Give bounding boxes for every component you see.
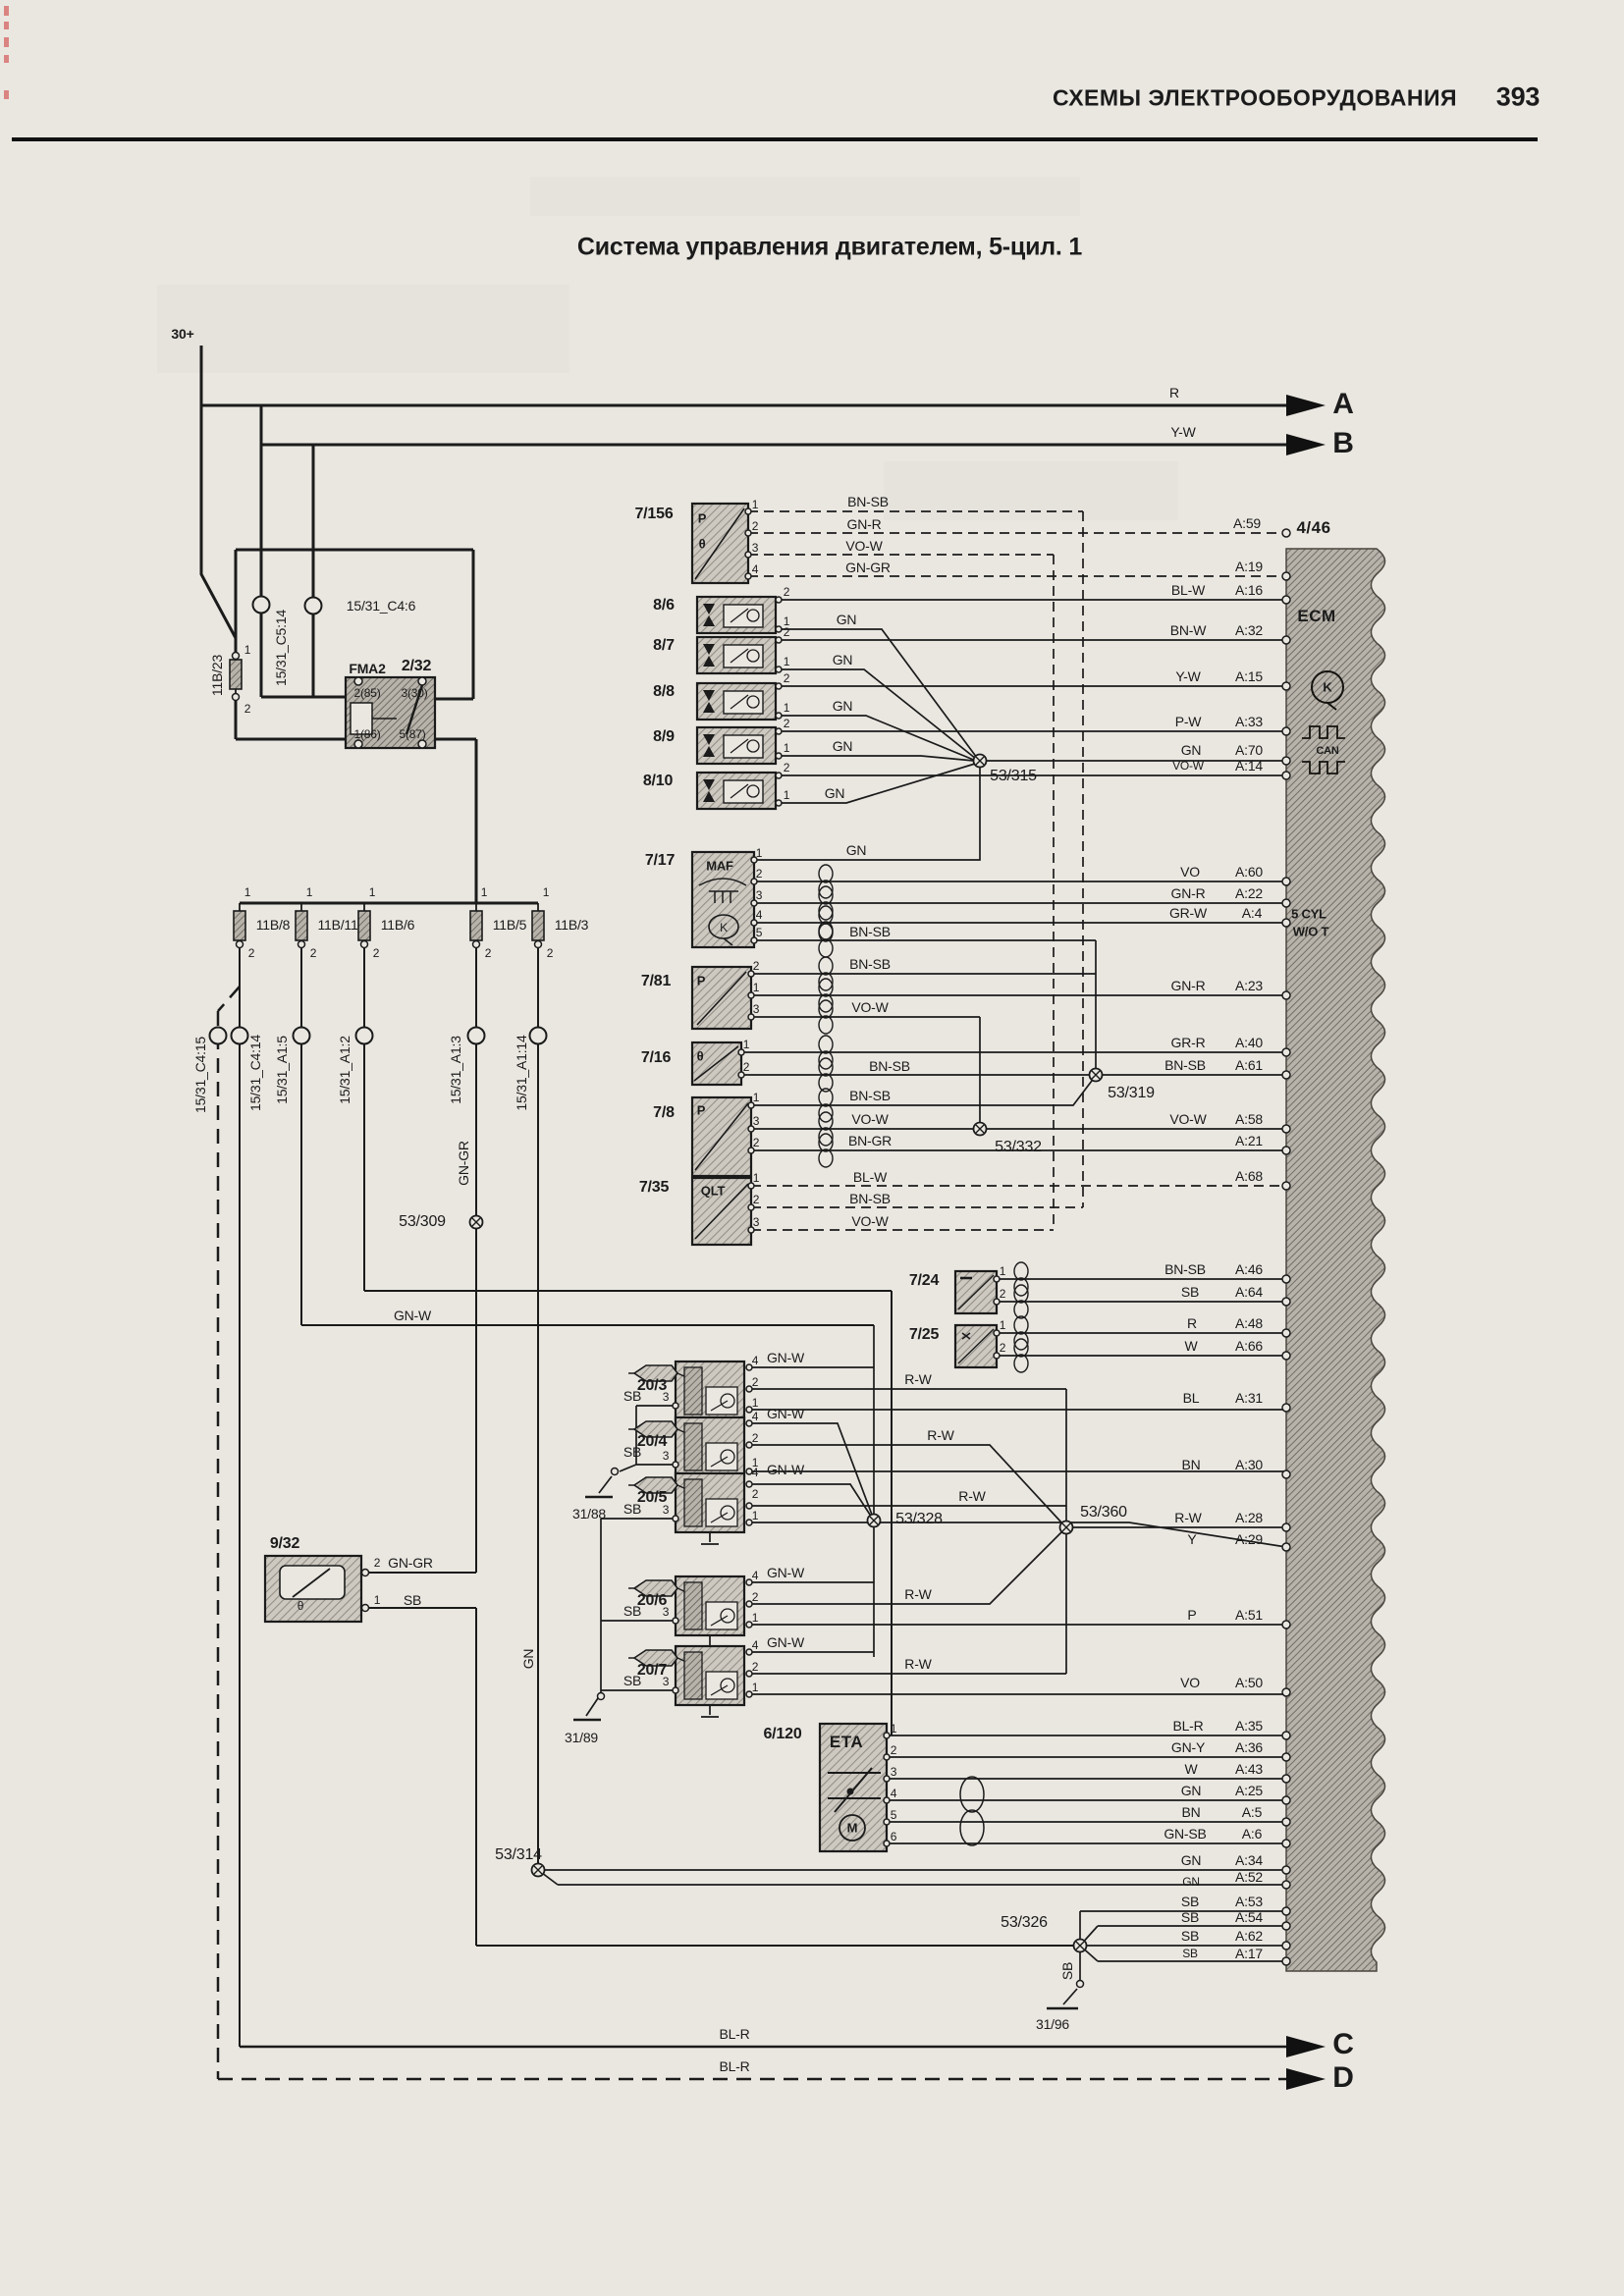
label-ecm-pins-a36: A:36 <box>1235 1739 1263 1755</box>
label-wire_colors-gny: GN-Y <box>1171 1739 1205 1755</box>
label-pn-n3: 3 <box>756 888 762 902</box>
label-fuses-f3: 11B/3 <box>555 917 589 933</box>
label-connectors-c414: 15/31_C4:14 <box>247 1035 263 1111</box>
label-junctions-j328: 53/328 <box>895 1511 943 1528</box>
label-pn-n6: 6 <box>891 1830 896 1843</box>
label-pn-n1: 1 <box>306 885 312 899</box>
label-pn-n2: 2 <box>784 761 789 774</box>
label-ecm-pins-a25: A:25 <box>1235 1783 1263 1798</box>
label-components-s932-t: θ <box>298 1599 303 1613</box>
label-wire_colors-rw: R-W <box>904 1656 931 1672</box>
label-ecm-pins-a6: A:6 <box>1242 1826 1262 1842</box>
label-pn-n1: 1 <box>752 1611 758 1625</box>
label-pn-n1: 1 <box>752 498 758 511</box>
label-pn-n1: 1 <box>891 1722 896 1735</box>
label-wire_colors-vow: VO-W <box>851 999 888 1015</box>
label-pn-n2: 2 <box>743 1060 749 1074</box>
label-ecm-label: ECM <box>1297 607 1335 626</box>
label-ecm-pins-a5: A:5 <box>1242 1804 1262 1820</box>
label-wire_colors-r: R <box>1187 1315 1197 1331</box>
label-connectors-c415: 15/31_C4:15 <box>192 1037 208 1113</box>
label-pn-n5: 5 <box>891 1808 896 1822</box>
label-wire_colors-bnsb: BN-SB <box>849 924 891 939</box>
label-connectors-a114: 15/31_A1:14 <box>514 1035 529 1110</box>
label-components-s7156-p: P <box>698 511 706 526</box>
label-components-s716-t: θ <box>697 1049 704 1064</box>
label-wire_colors-blr: BL-R <box>719 2058 749 2074</box>
label-ecm-pins-a52: A:52 <box>1235 1869 1263 1885</box>
label-components-qlt-label: QLT <box>701 1184 725 1199</box>
label-ecm-pins-a54: A:54 <box>1235 1909 1263 1925</box>
label-wire_colors-gn: GN <box>1181 1783 1202 1798</box>
label-net-a: A <box>1332 388 1353 421</box>
label-components-maf-k: K <box>720 921 728 934</box>
label-ecm-pins-a32: A:32 <box>1235 622 1263 638</box>
label-wire_colors-r: R <box>1169 385 1179 400</box>
label-wire_colors-vow: VO-W <box>845 538 882 554</box>
label-pn-n1: 1 <box>374 1593 380 1607</box>
label-components-relay-name: FMA2 <box>349 661 385 676</box>
label-wire_colors-vow: VO-W <box>1169 1111 1206 1127</box>
label-pn-n2: 2 <box>310 946 316 960</box>
label-wire_colors-gn: GN <box>833 652 853 667</box>
label-junctions-j315: 53/315 <box>990 768 1037 785</box>
label-wire_colors-sb: SB <box>1181 1894 1199 1909</box>
label-ecm-cyl_line2: W/O T <box>1293 925 1329 939</box>
label-ecm-pins-a64: A:64 <box>1235 1284 1263 1300</box>
label-components-relay-pin87: 5(87) <box>399 727 425 741</box>
label-wire_colors-gn: GN <box>1182 1875 1200 1889</box>
label-wire_colors-pw: P-W <box>1175 714 1202 729</box>
label-pn-n3: 3 <box>753 1002 759 1016</box>
label-pn-n3: 3 <box>753 1215 759 1229</box>
label-components-relay-pin85: 2(85) <box>353 686 380 700</box>
label-ecm-pins-a51: A:51 <box>1235 1607 1263 1623</box>
label-components-coil1-id: 8/6 <box>653 597 675 614</box>
label-pn-n1: 1 <box>753 1091 759 1104</box>
label-pn-n1: 1 <box>753 981 759 994</box>
label-wire_colors-sb: SB <box>1181 1928 1199 1944</box>
label-components-s725-id: 7/25 <box>909 1326 939 1344</box>
label-junctions-j309: 53/309 <box>399 1213 446 1231</box>
label-connectors-a13: 15/31_A1:3 <box>448 1036 463 1104</box>
label-pn-n3: 3 <box>663 1503 669 1517</box>
label-net-plus30: 30+ <box>171 326 193 342</box>
label-wire_colors-blw: BL-W <box>853 1169 887 1185</box>
label-wire_colors-bl: BL <box>1183 1390 1200 1406</box>
label-ecm-pins-a60: A:60 <box>1235 864 1263 880</box>
label-wire_colors-bnsb: BN-SB <box>847 494 889 509</box>
label-wire_colors-grr: GR-R <box>1171 1035 1206 1050</box>
label-wire_colors-sb: SB <box>623 1501 641 1517</box>
label-ecm-pins-a61: A:61 <box>1235 1057 1263 1073</box>
label-wire_colors-gnr: GN-R <box>1171 978 1206 993</box>
label-pn-n4: 4 <box>752 1466 758 1479</box>
label-pn-n1: 1 <box>784 788 789 802</box>
label-pn-n2: 2 <box>753 1136 759 1149</box>
label-wire_colors-sb: SB <box>623 1673 641 1688</box>
label-wire_colors-bnsb: BN-SB <box>849 1088 891 1103</box>
label-page-title: Система управления двигателем, 5-цил. 1 <box>577 234 1082 262</box>
label-ecm-pins-a22: A:22 <box>1235 885 1263 901</box>
label-components-relay-id: 2/32 <box>402 658 431 675</box>
label-ecm-pins-a40: A:40 <box>1235 1035 1263 1050</box>
label-wire_colors-gnw: GN-W <box>767 1565 804 1580</box>
label-pn-n2: 2 <box>753 959 759 973</box>
label-pn-n5: 5 <box>756 926 762 939</box>
label-connectors-c46: 15/31_C4:6 <box>347 598 415 614</box>
label-wire_colors-gnw: GN-W <box>394 1308 431 1323</box>
label-fuses-f5: 11B/5 <box>493 917 527 933</box>
label-components-coil4-id: 8/9 <box>653 728 675 746</box>
label-pn-n2: 2 <box>753 1193 759 1206</box>
label-ecm-pins-a43: A:43 <box>1235 1761 1263 1777</box>
label-pn-n2: 2 <box>752 1660 758 1674</box>
label-junctions-j360: 53/360 <box>1080 1504 1127 1522</box>
manual-page: СХЕМЫ ЭЛЕКТРООБОРУДОВАНИЯ393Система упра… <box>0 0 1624 2296</box>
label-ecm-k: K <box>1323 680 1331 695</box>
label-pn-n2: 2 <box>784 625 789 639</box>
label-pn-n3: 3 <box>663 1449 669 1463</box>
label-components-s78-id: 7/8 <box>653 1104 675 1122</box>
label-ecm-pins-a66: A:66 <box>1235 1338 1263 1354</box>
label-ecm-cyl_line1: 5 CYL <box>1291 907 1326 922</box>
label-pn-n3: 3 <box>663 1605 669 1619</box>
label-pn-n1: 1 <box>369 885 375 899</box>
label-ecm-pins-a14: A:14 <box>1235 758 1263 774</box>
label-ecm-pins-a30: A:30 <box>1235 1457 1263 1472</box>
label-net-c: C <box>1332 2028 1353 2061</box>
label-ecm-pins-a68: A:68 <box>1235 1168 1263 1184</box>
label-wire_colors-blw: BL-W <box>1171 582 1205 598</box>
label-wire_colors-yw: Y-W <box>1175 668 1200 684</box>
label-wire_colors-vow: VO-W <box>851 1213 888 1229</box>
label-pn-n2: 2 <box>752 1375 758 1389</box>
label-wire_colors-gnr: GN-R <box>847 516 882 532</box>
label-wire_colors-bn: BN <box>1181 1457 1200 1472</box>
label-wire_colors-sb: SB <box>623 1444 641 1460</box>
label-pn-n2: 2 <box>485 946 491 960</box>
label-wire_colors-gn: GN <box>1181 742 1202 758</box>
label-pn-n3: 3 <box>663 1675 669 1688</box>
label-grounds-g88: 31/88 <box>572 1506 606 1522</box>
label-wire_colors-sb: SB <box>1059 1962 1075 1980</box>
label-wire_colors-p: P <box>1187 1607 1196 1623</box>
label-components-s7156-t: θ <box>699 537 706 552</box>
label-pn-n3: 3 <box>752 541 758 555</box>
label-components-eta-id: 6/120 <box>763 1726 801 1743</box>
label-wire_colors-gnr: GN-R <box>1171 885 1206 901</box>
label-junctions-j326: 53/326 <box>1001 1914 1048 1932</box>
label-pn-n2: 2 <box>752 1431 758 1445</box>
label-ecm-pins-a29: A:29 <box>1235 1531 1263 1547</box>
label-wire_colors-bnw: BN-W <box>1170 622 1207 638</box>
label-pn-n1: 1 <box>752 1509 758 1522</box>
label-pn-n1: 1 <box>244 643 250 657</box>
label-connectors-a15: 15/31_A1:5 <box>274 1036 290 1104</box>
label-ecm-pins-a16: A:16 <box>1235 582 1263 598</box>
label-components-coil2-id: 8/7 <box>653 637 675 655</box>
label-pn-n4: 4 <box>752 1638 758 1652</box>
label-pn-n1: 1 <box>481 885 487 899</box>
label-ecm-pins-a70: A:70 <box>1235 742 1263 758</box>
label-pn-n2: 2 <box>756 867 762 881</box>
label-components-eta-label: ETA <box>830 1733 863 1752</box>
label-wire_colors-vow: VO-W <box>851 1111 888 1127</box>
label-junctions-j314: 53/314 <box>495 1846 542 1864</box>
label-wire_colors-bnsb: BN-SB <box>849 1191 891 1206</box>
label-wire_colors-bnsb: BN-SB <box>1164 1261 1206 1277</box>
label-components-s724-id: 7/24 <box>909 1272 939 1290</box>
label-pn-n1: 1 <box>543 885 549 899</box>
label-components-eta-m: M <box>847 1821 858 1836</box>
label-ecm-pins-a19: A:19 <box>1235 559 1263 574</box>
label-wire_colors-vo: VO <box>1180 864 1200 880</box>
label-pn-n2: 2 <box>1000 1287 1005 1301</box>
label-grounds-g96: 31/96 <box>1036 2016 1069 2032</box>
label-pn-n1: 1 <box>752 1681 758 1694</box>
label-wire_colors-gn: GN <box>833 738 853 754</box>
label-fuses-f8: 11B/8 <box>256 917 291 933</box>
label-ecm-pins-a58: A:58 <box>1235 1111 1263 1127</box>
label-net-b: B <box>1332 427 1353 460</box>
label-wire_colors-gnw: GN-W <box>767 1350 804 1365</box>
label-wire_colors-gn: GN <box>825 785 845 801</box>
label-pn-n1: 1 <box>1000 1264 1005 1278</box>
label-ecm-pins-a4: A:4 <box>1242 905 1262 921</box>
label-ecm-pins-a33: A:33 <box>1235 714 1263 729</box>
label-wire_colors-gnw: GN-W <box>767 1462 804 1477</box>
label-pn-n4: 4 <box>756 908 762 922</box>
label-pn-n3: 3 <box>891 1765 896 1779</box>
label-ecm-connector: 4/46 <box>1296 518 1330 538</box>
label-pn-n1: 1 <box>244 885 250 899</box>
label-ecm-can: CAN <box>1316 745 1338 757</box>
label-pn-n2: 2 <box>752 1590 758 1604</box>
label-pn-n1: 1 <box>753 1171 759 1185</box>
label-wire_colors-w: W <box>1184 1338 1197 1354</box>
label-pn-n4: 4 <box>891 1787 896 1800</box>
label-ecm-pins-a59: A:59 <box>1233 515 1261 531</box>
label-wire_colors-sb: SB <box>623 1603 641 1619</box>
label-ecm-pins-a15: A:15 <box>1235 668 1263 684</box>
label-grounds-g89: 31/89 <box>565 1730 598 1745</box>
label-wire_colors-vow: VO-W <box>1172 759 1204 773</box>
label-wire_colors-gn: GN <box>846 842 867 858</box>
label-pn-n4: 4 <box>752 1569 758 1582</box>
label-wire_colors-sb: SB <box>623 1388 641 1404</box>
label-wire_colors-sb: SB <box>404 1592 421 1608</box>
label-components-coil3-id: 8/8 <box>653 683 675 701</box>
label-components-relay-pin30: 3(30) <box>401 686 427 700</box>
label-components-s7156-id: 7/156 <box>634 506 673 523</box>
diagram-labels: СХЕМЫ ЭЛЕКТРООБОРУДОВАНИЯ393Система упра… <box>0 0 1624 2296</box>
label-pn-n1: 1 <box>1000 1318 1005 1332</box>
label-components-relay-pin86: 1(86) <box>353 727 380 741</box>
label-wire_colors-gn: GN <box>837 612 857 627</box>
label-ecm-pins-a28: A:28 <box>1235 1510 1263 1525</box>
label-components-qlt-id: 7/35 <box>639 1179 669 1197</box>
label-components-s716-id: 7/16 <box>641 1049 671 1067</box>
label-components-maf-id: 7/17 <box>645 852 675 870</box>
label-pn-n1: 1 <box>756 846 762 860</box>
label-wire_colors-bn: BN <box>1181 1804 1200 1820</box>
label-wire_colors-bnsb: BN-SB <box>849 956 891 972</box>
label-fuses-f11: 11B/11 <box>317 917 357 933</box>
label-fuses-f23: 11B/23 <box>209 655 225 696</box>
label-components-s781-p: P <box>697 974 705 988</box>
label-connectors-a12: 15/31_A1:2 <box>337 1036 352 1104</box>
label-wire_colors-gnw: GN-W <box>767 1406 804 1421</box>
label-pn-n2: 2 <box>784 717 789 730</box>
label-wire_colors-bngr: BN-GR <box>848 1133 892 1148</box>
label-wire_colors-rw: R-W <box>1174 1510 1201 1525</box>
label-components-maf-label: MAF <box>706 859 733 874</box>
label-wire_colors-rw: R-W <box>927 1427 953 1443</box>
label-ecm-pins-a17: A:17 <box>1235 1946 1263 1961</box>
label-pn-n4: 4 <box>752 1410 758 1423</box>
label-wire_colors-blr: BL-R <box>719 2026 749 2042</box>
label-ecm-pins-a46: A:46 <box>1235 1261 1263 1277</box>
label-wire_colors-bnsb: BN-SB <box>869 1058 910 1074</box>
label-wire_colors-gn: GN <box>520 1649 536 1670</box>
label-wire_colors-rw: R-W <box>904 1371 931 1387</box>
label-wire_colors-sb: SB <box>1182 1947 1198 1960</box>
label-junctions-j319: 53/319 <box>1108 1085 1155 1102</box>
label-pn-n1: 1 <box>784 655 789 668</box>
label-pn-n2: 2 <box>752 1487 758 1501</box>
label-pn-n2: 2 <box>244 702 250 716</box>
label-wire_colors-grw: GR-W <box>1169 905 1207 921</box>
label-pn-n3: 3 <box>663 1390 669 1404</box>
label-wire_colors-sb: SB <box>1181 1909 1199 1925</box>
label-wire_colors-rw: R-W <box>958 1488 985 1504</box>
label-wire_colors-gngr: GN-GR <box>388 1555 433 1571</box>
label-wire_colors-gn: GN <box>1181 1852 1202 1868</box>
label-ecm-pins-a50: A:50 <box>1235 1675 1263 1690</box>
label-wire_colors-sb: SB <box>1181 1284 1199 1300</box>
label-junctions-j332: 53/332 <box>995 1139 1042 1156</box>
label-connectors-c514: 15/31_C5:14 <box>273 610 289 686</box>
label-pn-n2: 2 <box>891 1743 896 1757</box>
label-wire_colors-gn: GN <box>833 698 853 714</box>
label-components-s78-p: P <box>697 1103 705 1118</box>
label-wire_colors-blr: BL-R <box>1172 1718 1203 1734</box>
label-ecm-pins-a34: A:34 <box>1235 1852 1263 1868</box>
label-ecm-pins-a62: A:62 <box>1235 1928 1263 1944</box>
label-pn-n4: 4 <box>752 1354 758 1367</box>
label-pn-n2: 2 <box>752 519 758 533</box>
label-pn-n2: 2 <box>547 946 553 960</box>
label-pn-n2: 2 <box>248 946 254 960</box>
label-wire_colors-bnsb: BN-SB <box>1164 1057 1206 1073</box>
label-ecm-pins-a31: A:31 <box>1235 1390 1263 1406</box>
label-ecm-pins-a21: A:21 <box>1235 1133 1263 1148</box>
label-pn-n2: 2 <box>784 585 789 599</box>
label-ecm-pins-a35: A:35 <box>1235 1718 1263 1734</box>
label-components-s781-id: 7/81 <box>641 973 671 990</box>
label-wire_colors-w: W <box>1184 1761 1197 1777</box>
label-net-d: D <box>1332 2061 1353 2095</box>
label-wire_colors-gnw: GN-W <box>767 1634 804 1650</box>
label-ecm-pins-a23: A:23 <box>1235 978 1263 993</box>
label-wire_colors-vo: VO <box>1180 1675 1200 1690</box>
label-wire_colors-gnsb: GN-SB <box>1164 1826 1206 1842</box>
label-pn-n3: 3 <box>753 1114 759 1128</box>
label-wire_colors-gngr: GN-GR <box>845 560 891 575</box>
label-pn-n1: 1 <box>743 1038 749 1051</box>
label-pn-n2: 2 <box>1000 1341 1005 1355</box>
label-components-coil5-id: 8/10 <box>643 773 673 790</box>
label-pn-n2: 2 <box>373 946 379 960</box>
label-pn-n1: 1 <box>784 741 789 755</box>
label-wire_colors-yw: Y-W <box>1170 424 1195 440</box>
label-page-header: СХЕМЫ ЭЛЕКТРООБОРУДОВАНИЯ <box>1053 85 1457 112</box>
label-pn-n1: 1 <box>784 701 789 715</box>
label-page-page_number: 393 <box>1496 82 1540 113</box>
label-wire_colors-y: Y <box>1187 1531 1196 1547</box>
label-wire_colors-rw: R-W <box>904 1586 931 1602</box>
label-components-s932-id: 9/32 <box>270 1535 299 1553</box>
label-wire_colors-gngr: GN-GR <box>456 1141 471 1186</box>
label-pn-n2: 2 <box>374 1556 380 1570</box>
label-ecm-pins-a53: A:53 <box>1235 1894 1263 1909</box>
label-pn-n4: 4 <box>752 562 758 576</box>
label-pn-n1: 1 <box>752 1396 758 1410</box>
label-ecm-pins-a48: A:48 <box>1235 1315 1263 1331</box>
label-fuses-f6: 11B/6 <box>381 917 415 933</box>
label-pn-n2: 2 <box>784 671 789 685</box>
